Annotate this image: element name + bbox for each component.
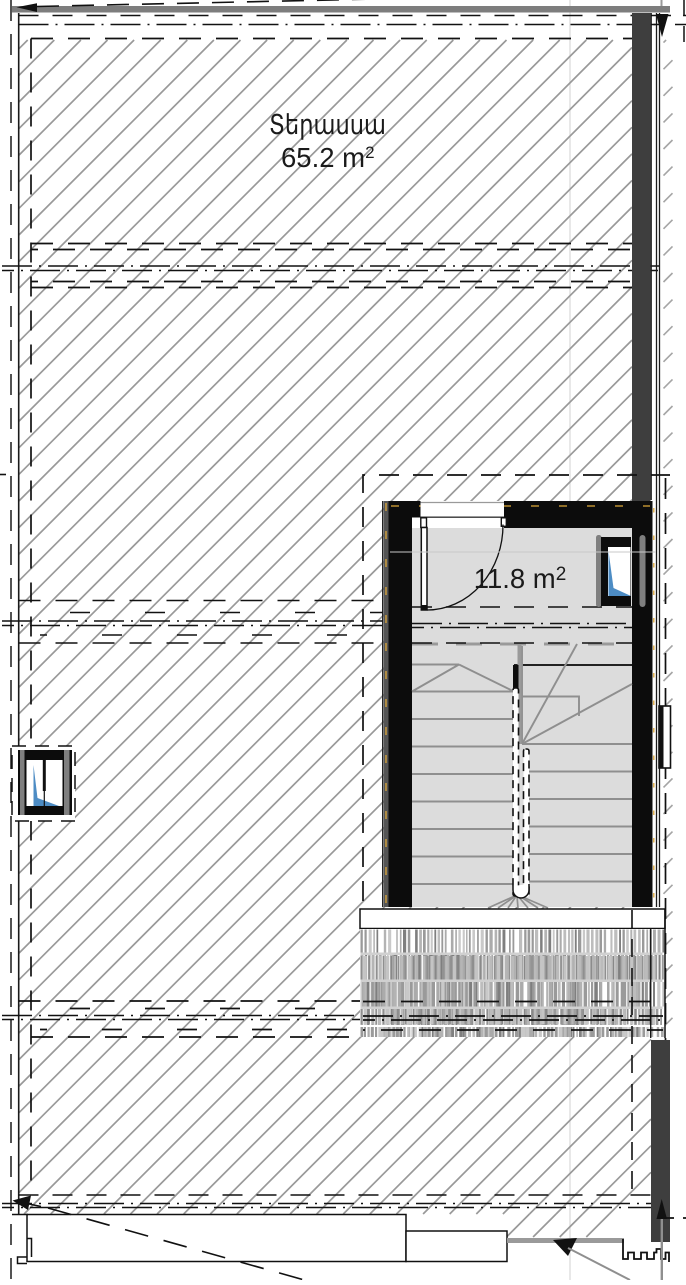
svg-text:65.2 m2: 65.2 m2 xyxy=(281,142,375,173)
svg-text:Տերասսա: Տերասսա xyxy=(269,109,386,140)
svg-text:11.8 m2: 11.8 m2 xyxy=(474,563,567,594)
